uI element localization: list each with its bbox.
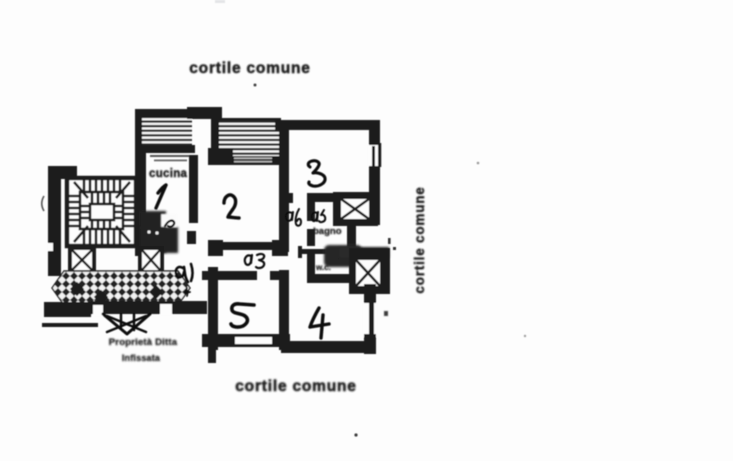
svg-text:cortile comune: cortile comune [189, 60, 310, 77]
svg-text:cortile comune: cortile comune [412, 186, 427, 293]
svg-text:cucina: cucina [149, 168, 188, 180]
svg-text:Infissata: Infissata [122, 353, 161, 363]
svg-text:Proprietà Ditta: Proprietà Ditta [109, 337, 178, 348]
svg-text:w.c.: w.c. [315, 263, 331, 272]
svg-text:cortile comune: cortile comune [235, 378, 356, 395]
svg-text:bagno: bagno [313, 226, 342, 237]
